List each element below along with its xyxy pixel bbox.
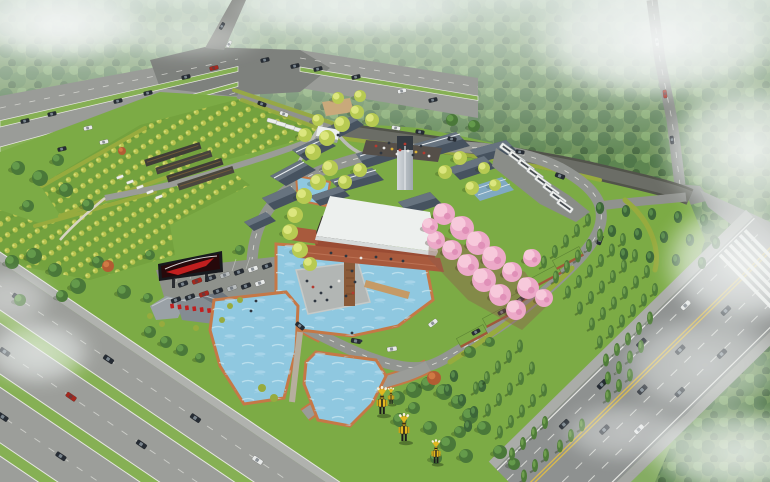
person [306,280,309,283]
conifer-tree [622,205,630,217]
person [360,257,363,260]
person [345,295,348,298]
person [312,286,315,289]
person [255,300,258,303]
conifer-tree [450,370,458,382]
conifer-tree [648,208,656,220]
scene-canvas: Aerial rendering of a park resort master… [0,0,770,482]
person [330,286,333,289]
person [404,143,407,146]
person [388,142,391,145]
person [330,252,333,255]
person [396,153,399,156]
person [320,292,323,295]
rock-character [192,306,196,311]
conifer-tree [464,420,472,432]
person [423,152,426,155]
rock-character [185,305,189,310]
person [345,255,348,258]
person [420,145,423,148]
aerial-masterplan-rendering: Aerial rendering of a park resort master… [0,0,770,482]
person [407,150,410,153]
person [375,145,378,148]
person [391,148,394,151]
bush [159,321,165,327]
person [354,281,357,284]
red-maple-tree [427,371,441,385]
bush [193,325,199,331]
conifer-tree [634,228,642,240]
boardwalk-pier [344,256,355,306]
person [390,258,393,261]
rock-character [170,303,174,308]
rock-character [177,304,181,309]
bush [237,297,243,303]
person [412,154,415,157]
conifer-tree [620,248,628,260]
person [250,310,253,313]
bush [219,317,225,323]
person [338,280,341,283]
conifer-tree [608,225,616,237]
person [337,134,340,137]
person [352,292,355,295]
conifer-tree [458,394,466,406]
person [360,340,363,343]
bush [227,303,233,309]
person [351,332,354,335]
person [383,147,386,150]
rock-character [207,308,211,313]
conifer-tree [470,406,478,418]
person [415,151,418,154]
bush [270,394,278,402]
person [402,260,405,263]
person [399,149,402,152]
person [428,155,431,158]
red-maple-tree [118,147,126,155]
person [380,152,383,155]
person [375,256,378,259]
conifer-tree [444,384,452,396]
person [314,300,317,303]
person [326,299,329,302]
bush [147,313,153,319]
rock-character [200,307,204,312]
red-maple-tree [102,260,114,272]
conifer-tree [596,202,604,214]
person [351,270,354,273]
conifer-tree [646,251,654,263]
bush [258,384,266,392]
